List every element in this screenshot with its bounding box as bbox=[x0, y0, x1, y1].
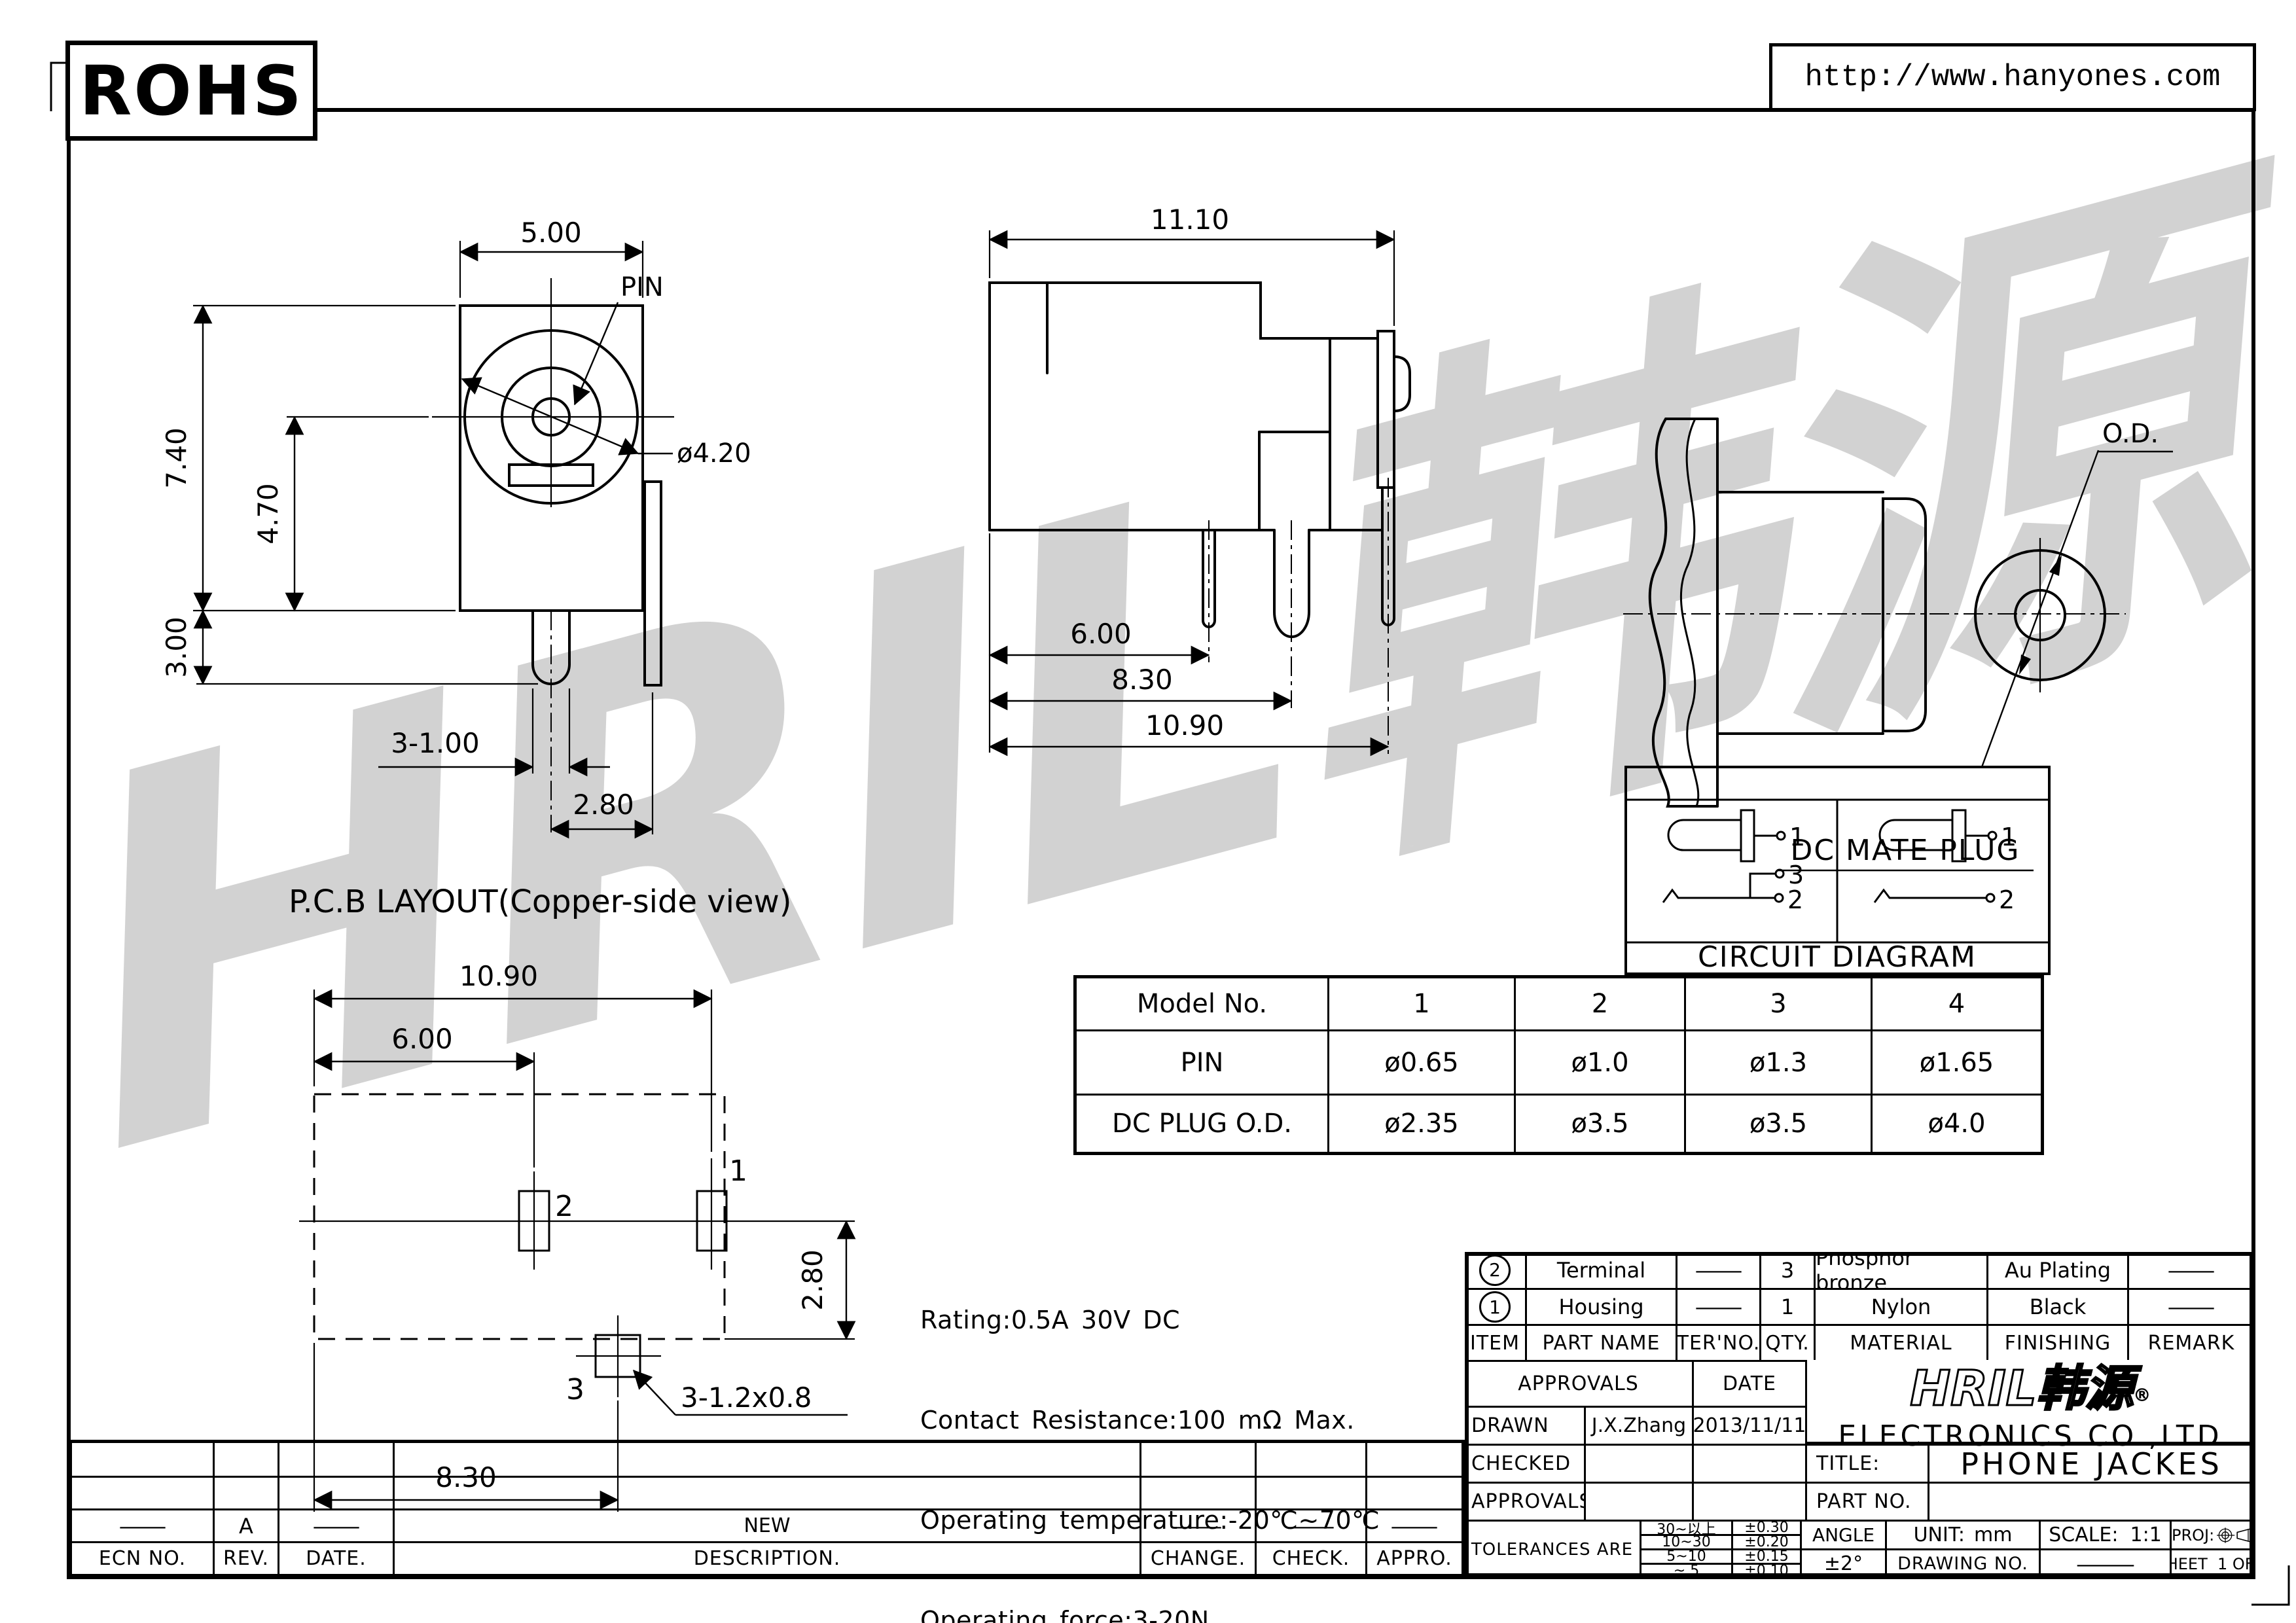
drawn-date: 2013/11/11 bbox=[1692, 1406, 1805, 1444]
front-dim-height: 7.40 bbox=[160, 427, 192, 489]
unit-cell: UNIT: mm bbox=[1885, 1520, 2039, 1548]
revision-cell bbox=[1139, 1443, 1255, 1476]
front-dim-pin-length: 3.00 bbox=[160, 616, 192, 678]
checked-label: CHECKED bbox=[1465, 1444, 1584, 1482]
revision-cell bbox=[1255, 1476, 1365, 1508]
tol-range: 10~30 bbox=[1640, 1534, 1731, 1548]
front-pin-label: PIN bbox=[620, 272, 664, 302]
front-diameter-label: ø4.20 bbox=[677, 438, 751, 469]
revision-header-description: DESCRIPTION. bbox=[393, 1541, 1139, 1574]
checked-date bbox=[1692, 1444, 1805, 1482]
pcb-pad2-label: 2 bbox=[555, 1190, 573, 1223]
drawing-no-value: — bbox=[2039, 1548, 2170, 1577]
approvals-label: APPROVALS bbox=[1465, 1482, 1584, 1520]
model-table-header: 3 bbox=[1684, 978, 1871, 1029]
revision-header-rev: REV. bbox=[213, 1541, 278, 1574]
circled-number: 2 bbox=[1479, 1255, 1511, 1286]
revision-description: NEW bbox=[393, 1508, 1139, 1541]
drawn-label: DRAWN bbox=[1465, 1406, 1584, 1444]
projection-label: PROJ: bbox=[2172, 1526, 2214, 1544]
model-table-cell: ø3.5 bbox=[1684, 1094, 1871, 1152]
circuit-right-terminal-1: 1 bbox=[2001, 823, 2017, 851]
date-header: DATE bbox=[1692, 1360, 1805, 1406]
tol-range: 5~10 bbox=[1640, 1548, 1731, 1563]
spec-contact-resistance: Contact Resistance:100 mΩ Max. bbox=[920, 1404, 1470, 1437]
parts-header-ter-no: TER'NO. bbox=[1676, 1324, 1759, 1360]
pcb-dim-offset: 2.80 bbox=[797, 1249, 829, 1311]
parts-item-number: 2 bbox=[1465, 1252, 1525, 1288]
circuit-left-terminal-2: 2 bbox=[1787, 885, 1803, 914]
scale-value: 1:1 bbox=[2130, 1524, 2162, 1546]
tol-range: 30~以上 bbox=[1640, 1520, 1731, 1534]
parts-ter-no: — bbox=[1676, 1288, 1759, 1324]
front-dim-pins: 3-1.00 bbox=[391, 727, 479, 759]
side-dim-pin1: 6.00 bbox=[1070, 618, 1132, 650]
circuit-caption: CIRCUIT DIAGRAM bbox=[1698, 940, 1977, 974]
pcb-pad3-label: 3 bbox=[566, 1373, 584, 1406]
parts-part-name: Terminal bbox=[1525, 1252, 1676, 1288]
tol-value: ±0.20 bbox=[1731, 1534, 1800, 1548]
angle-label: ANGLE bbox=[1800, 1520, 1885, 1548]
tol-value: ±0.30 bbox=[1731, 1520, 1800, 1534]
parts-finishing: Black bbox=[1986, 1288, 2127, 1324]
revision-header-ecn: ECN NO. bbox=[72, 1541, 213, 1574]
company-logo: HRIL韩源® bbox=[1910, 1349, 2151, 1419]
part-no-row: PART NO. bbox=[1805, 1482, 2253, 1520]
plug-od-label: O.D. bbox=[2102, 419, 2159, 449]
model-table-row-label: PIN bbox=[1077, 1029, 1327, 1094]
revision-cell bbox=[278, 1443, 393, 1476]
revision-header-date: DATE. bbox=[278, 1541, 393, 1574]
drawing-sheet: HRIL韩源 bbox=[0, 0, 2296, 1623]
revision-cell bbox=[1255, 1443, 1365, 1476]
model-table-cell: ø4.0 bbox=[1871, 1094, 2041, 1152]
model-table-header: Model No. bbox=[1077, 978, 1327, 1029]
revision-cell bbox=[72, 1476, 213, 1508]
tol-range: ~ 5 bbox=[1640, 1563, 1731, 1577]
scale-label: SCALE: bbox=[2049, 1524, 2118, 1546]
approvals-date bbox=[1692, 1482, 1805, 1520]
drawing-title: PHONE JACKES bbox=[1928, 1444, 2253, 1482]
parts-qty: 1 bbox=[1759, 1288, 1814, 1324]
approvals-header: APPROVALS bbox=[1465, 1360, 1692, 1406]
registered-mark: ® bbox=[2134, 1385, 2151, 1405]
part-no-label: PART NO. bbox=[1805, 1482, 1928, 1520]
pcb-layout: P.C.B LAYOUT(Copper-side view) 2 1 3 10.… bbox=[289, 883, 855, 1512]
revision-header-appro: APPRO. bbox=[1365, 1541, 1462, 1574]
revision-cell bbox=[393, 1443, 1139, 1476]
checked-value bbox=[1584, 1444, 1692, 1482]
parts-header-qty: QTY. bbox=[1759, 1324, 1814, 1360]
approvals-block: APPROVALS DATE DRAWN J.X.Zhang 2013/11/1… bbox=[1465, 1360, 1805, 1520]
revision-cell bbox=[72, 1443, 213, 1476]
model-table-cell: ø3.5 bbox=[1514, 1094, 1684, 1152]
front-view: 5.00 7.40 4.70 3.00 3-1.00 2.80 PIN bbox=[160, 217, 751, 834]
revision-date: — bbox=[278, 1508, 393, 1541]
revision-change: — bbox=[1139, 1508, 1255, 1541]
revision-table: — A — NEW — — — ECN NO. REV. DATE. DESCR… bbox=[69, 1440, 1465, 1577]
parts-material: Phosphor bronze bbox=[1814, 1252, 1986, 1288]
front-dim-width: 5.00 bbox=[520, 217, 582, 249]
model-table-cell: ø1.0 bbox=[1514, 1029, 1684, 1094]
model-table-cell: ø0.65 bbox=[1327, 1029, 1514, 1094]
scale-cell: SCALE: 1:1 bbox=[2039, 1520, 2170, 1548]
revision-cell bbox=[1365, 1476, 1462, 1508]
parts-part-name: Housing bbox=[1525, 1288, 1676, 1324]
revision-cell bbox=[1365, 1443, 1462, 1476]
model-table-row-label: DC PLUG O.D. bbox=[1077, 1094, 1327, 1152]
model-table-header: 4 bbox=[1871, 978, 2041, 1029]
projection-cell: PROJ: bbox=[2170, 1520, 2253, 1548]
model-table-cell: ø1.65 bbox=[1871, 1029, 2041, 1094]
parts-header-item: ITEM bbox=[1465, 1324, 1525, 1360]
front-dim-pitch: 2.80 bbox=[573, 789, 634, 821]
approvals-value bbox=[1584, 1482, 1692, 1520]
drawn-name: J.X.Zhang bbox=[1584, 1406, 1692, 1444]
pcb-dim-pad2: 6.00 bbox=[391, 1023, 453, 1055]
unit-value: mm bbox=[1974, 1524, 2012, 1546]
parts-remark: — bbox=[2127, 1252, 2253, 1288]
pcb-slot-label: 3-1.2x0.8 bbox=[681, 1382, 812, 1414]
title-label: TITLE: bbox=[1805, 1444, 1928, 1482]
dc-mate-plug-view: O.D. DC MATE PLUG bbox=[1623, 419, 2173, 870]
company-block: HRIL韩源® ELECTRONICS CO.,LTD bbox=[1805, 1360, 2253, 1444]
side-dim-pin3: 10.90 bbox=[1145, 709, 1224, 741]
pcb-dim-total: 10.90 bbox=[459, 960, 538, 992]
parts-item-number: 1 bbox=[1465, 1288, 1525, 1324]
front-dim-center: 4.70 bbox=[252, 483, 284, 544]
sheet-label: SHEET 1 OF 1 bbox=[2170, 1548, 2253, 1577]
third-angle-projection-icon bbox=[2217, 1522, 2253, 1548]
spec-operating-force: Operating force:3-20N bbox=[920, 1604, 1470, 1623]
circuit-right-terminal-2: 2 bbox=[1999, 885, 2015, 914]
parts-table: 2 Terminal — 3 Phosphor bronze Au Platin… bbox=[1465, 1252, 2253, 1360]
parts-finishing: Au Plating bbox=[1986, 1252, 2127, 1288]
revision-check: — bbox=[1255, 1508, 1365, 1541]
tolerance-block: TOLERANCES ARE 30~以上 10~30 5~10 ~ 5 ±0.3… bbox=[1465, 1520, 2253, 1577]
side-dim-pin2: 8.30 bbox=[1111, 664, 1173, 696]
website-link[interactable]: http://www.hanyones.com bbox=[1769, 43, 2256, 111]
revision-cell bbox=[213, 1476, 278, 1508]
revision-cell bbox=[213, 1443, 278, 1476]
revision-cell bbox=[278, 1476, 393, 1508]
unit-label: UNIT: bbox=[1914, 1524, 1965, 1546]
revision-header-check: CHECK. bbox=[1255, 1541, 1365, 1574]
model-table: Model No. 1 2 3 4 PIN ø0.65 ø1.0 ø1.3 ø1… bbox=[1073, 975, 2044, 1155]
title-row: TITLE: PHONE JACKES bbox=[1805, 1444, 2253, 1482]
revision-ecn: — bbox=[72, 1508, 213, 1541]
tol-value: ±0.15 bbox=[1731, 1548, 1800, 1563]
parts-ter-no: — bbox=[1676, 1252, 1759, 1288]
parts-header-part-name: PART NAME bbox=[1525, 1324, 1676, 1360]
part-no-value bbox=[1928, 1482, 2253, 1520]
drawing-no-label: DRAWING NO. bbox=[1885, 1548, 2039, 1577]
parts-remark: — bbox=[2127, 1288, 2253, 1324]
revision-header-change: CHANGE. bbox=[1139, 1541, 1255, 1574]
circuit-left-terminal-1: 1 bbox=[1789, 823, 1805, 851]
revision-cell bbox=[1139, 1476, 1255, 1508]
angle-value: ±2° bbox=[1800, 1548, 1885, 1577]
side-view: 11.10 6.00 8.30 10.90 bbox=[990, 204, 1410, 754]
tolerances-label: TOLERANCES ARE bbox=[1465, 1520, 1640, 1577]
circled-number: 1 bbox=[1479, 1291, 1511, 1323]
model-table-cell: ø2.35 bbox=[1327, 1094, 1514, 1152]
tol-value: ±0.10 bbox=[1731, 1563, 1800, 1577]
model-table-header: 2 bbox=[1514, 978, 1684, 1029]
parts-material: Nylon bbox=[1814, 1288, 1986, 1324]
revision-appro: — bbox=[1365, 1508, 1462, 1541]
pcb-title: P.C.B LAYOUT(Copper-side view) bbox=[289, 883, 792, 920]
model-table-cell: ø1.3 bbox=[1684, 1029, 1871, 1094]
model-table-header: 1 bbox=[1327, 978, 1514, 1029]
revision-rev: A bbox=[213, 1508, 278, 1541]
revision-cell bbox=[393, 1476, 1139, 1508]
pcb-pad1-label: 1 bbox=[729, 1154, 747, 1188]
spec-rating: Rating:0.5A 30V DC bbox=[920, 1304, 1470, 1337]
side-dim-width: 11.10 bbox=[1151, 204, 1229, 236]
rohs-badge: ROHS bbox=[65, 41, 317, 141]
parts-qty: 3 bbox=[1759, 1252, 1814, 1288]
